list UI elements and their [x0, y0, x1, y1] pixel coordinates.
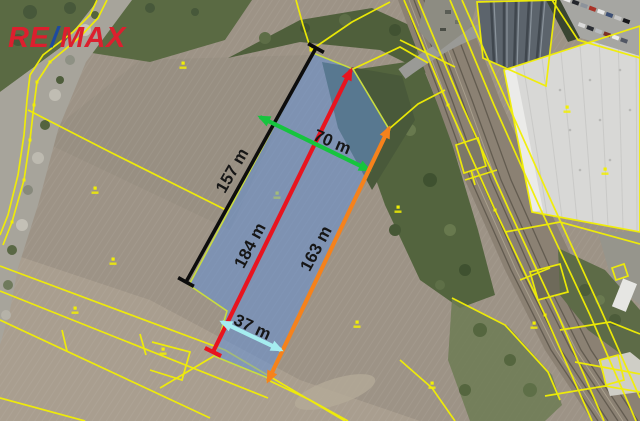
- boundary-vertex: [11, 221, 14, 224]
- aerial-map: 157 m184 m70 m163 m37 m RE/MAX: [0, 0, 640, 421]
- boundary-vertex: [494, 209, 497, 212]
- boundary-vertex: [29, 139, 32, 142]
- boundary-vertex: [310, 49, 313, 52]
- boundary-vertex: [544, 314, 547, 317]
- logo-re: RE: [8, 22, 49, 54]
- map-canvas: 157 m184 m70 m163 m37 m: [0, 0, 640, 421]
- boundary-vertex: [447, 104, 450, 107]
- boundary-vertex: [23, 179, 26, 182]
- boundary-vertex: [33, 104, 36, 107]
- boundary-vertex: [36, 81, 39, 84]
- logo-slash-icon: /: [49, 22, 60, 54]
- boundary-vertex: [49, 61, 52, 64]
- logo-max: MAX: [60, 22, 126, 54]
- remax-logo: RE/MAX: [8, 24, 126, 53]
